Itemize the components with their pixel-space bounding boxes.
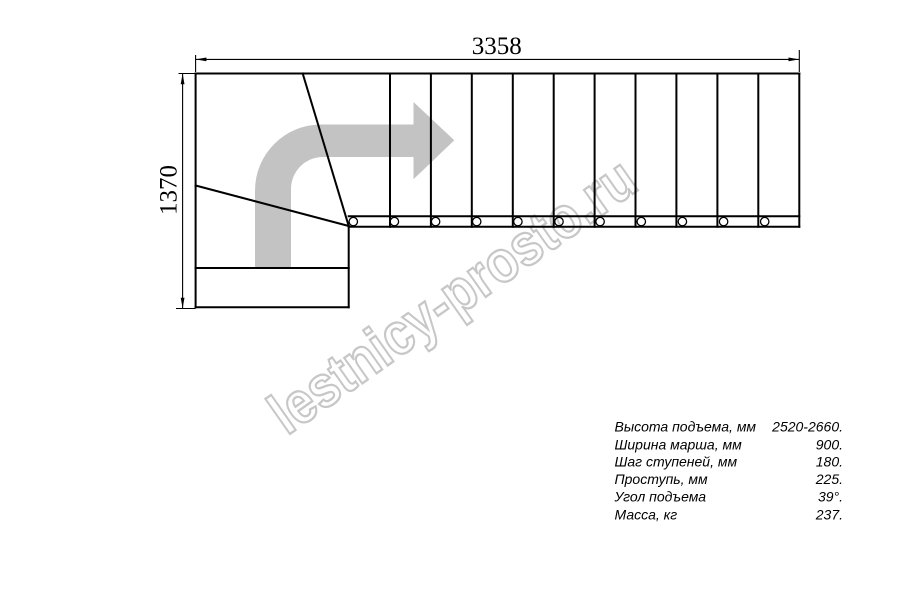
svg-text:900.: 900. [816, 436, 843, 452]
svg-text:Высота подъема, мм: Высота подъема, мм [615, 419, 757, 435]
svg-text:Ширина марша, мм: Ширина марша, мм [615, 436, 743, 452]
svg-text:3358: 3358 [472, 33, 522, 60]
svg-text:1370: 1370 [156, 165, 183, 215]
svg-text:180.: 180. [816, 454, 843, 470]
svg-text:2520-2660.: 2520-2660. [771, 419, 843, 435]
svg-text:225.: 225. [815, 471, 843, 487]
svg-text:Шаг ступеней, мм: Шаг ступеней, мм [615, 454, 738, 470]
svg-text:Проступь, мм: Проступь, мм [615, 471, 709, 487]
svg-text:237.: 237. [815, 506, 843, 522]
svg-text:39°.: 39°. [818, 489, 843, 505]
svg-text:Угол подъема: Угол подъема [614, 489, 707, 505]
svg-text:Масса, кг: Масса, кг [615, 506, 678, 522]
